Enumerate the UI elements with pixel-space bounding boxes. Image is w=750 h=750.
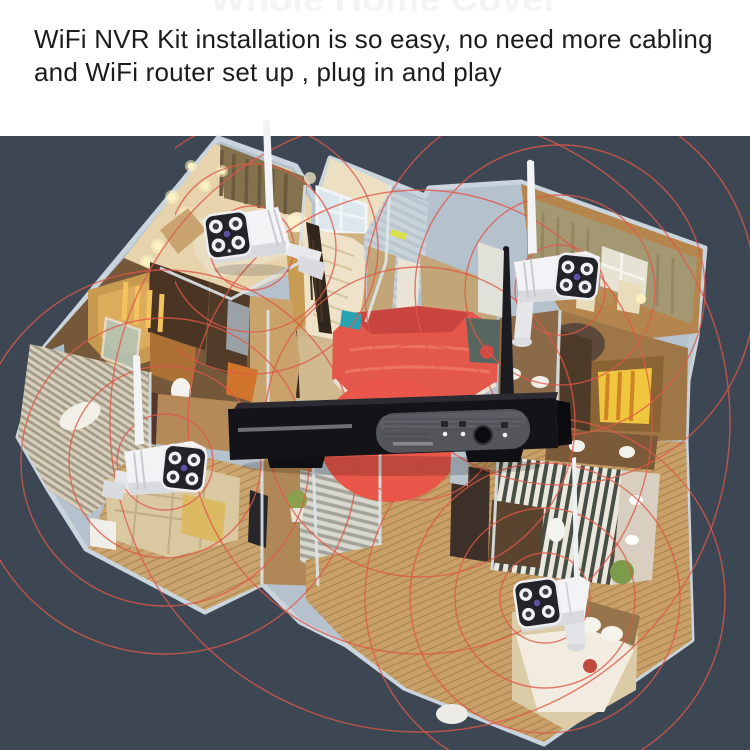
svg-text:Whole Home Cover: Whole Home Cover [210, 0, 559, 20]
svg-text:and WiFi router set up , plug: and WiFi router set up , plug in and pla… [34, 57, 502, 87]
svg-text:WiFi NVR Kit installation is s: WiFi NVR Kit installation is so easy, no… [34, 24, 713, 54]
